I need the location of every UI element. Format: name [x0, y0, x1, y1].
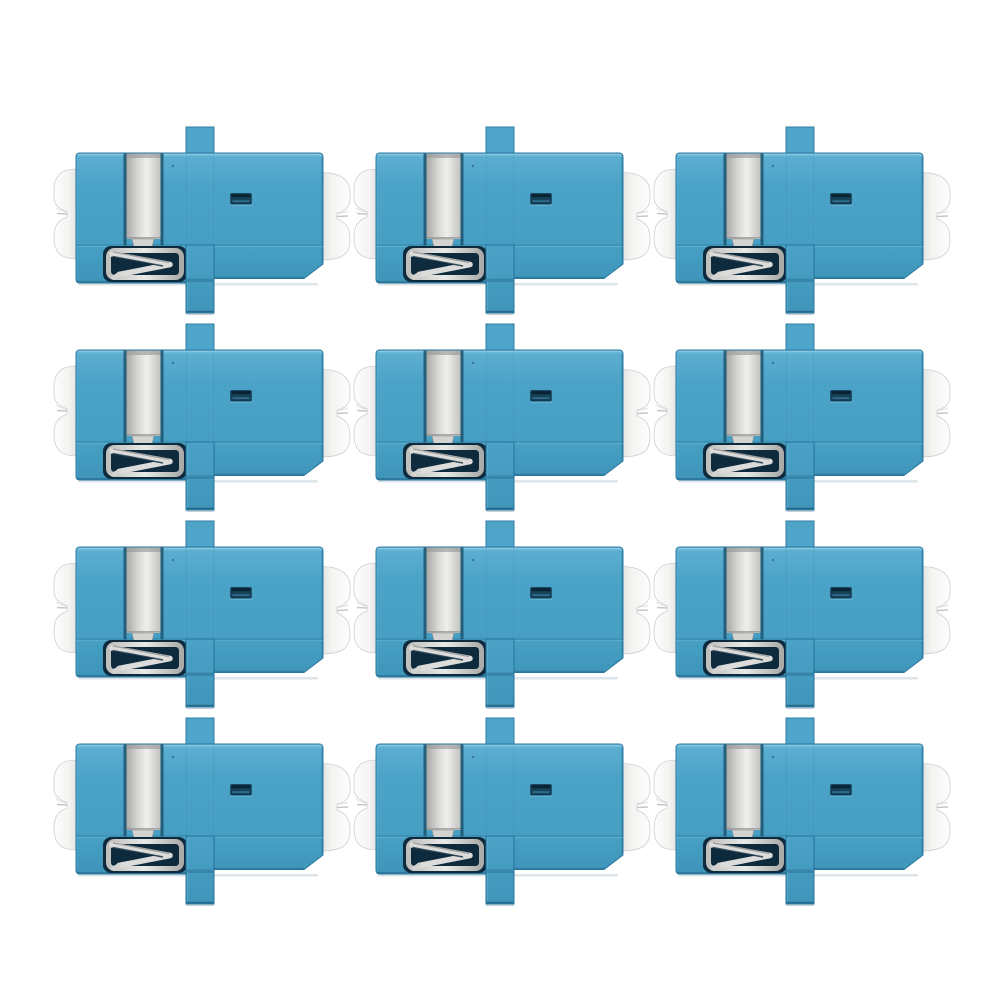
adapter-item — [53, 519, 353, 716]
adapter-item — [353, 519, 653, 716]
adapter-graphic — [53, 519, 353, 709]
adapter-item — [653, 125, 953, 322]
adapter-graphic — [53, 716, 353, 906]
adapter-item — [353, 125, 653, 322]
adapter-graphic — [53, 322, 353, 512]
adapter-item — [353, 322, 653, 519]
adapter-item — [53, 125, 353, 322]
adapter-graphic — [653, 322, 953, 512]
adapter-grid — [53, 125, 953, 913]
adapter-graphic — [53, 125, 353, 315]
adapter-graphic — [353, 716, 653, 906]
adapter-item — [653, 322, 953, 519]
adapter-graphic — [653, 519, 953, 709]
adapter-graphic — [653, 125, 953, 315]
adapter-graphic — [653, 716, 953, 906]
adapter-graphic — [353, 322, 653, 512]
adapter-item — [53, 716, 353, 913]
adapter-item — [653, 716, 953, 913]
adapter-graphic — [353, 125, 653, 315]
adapter-graphic — [353, 519, 653, 709]
product-photo — [0, 0, 1002, 1002]
adapter-item — [53, 322, 353, 519]
adapter-item — [353, 716, 653, 913]
adapter-item — [653, 519, 953, 716]
